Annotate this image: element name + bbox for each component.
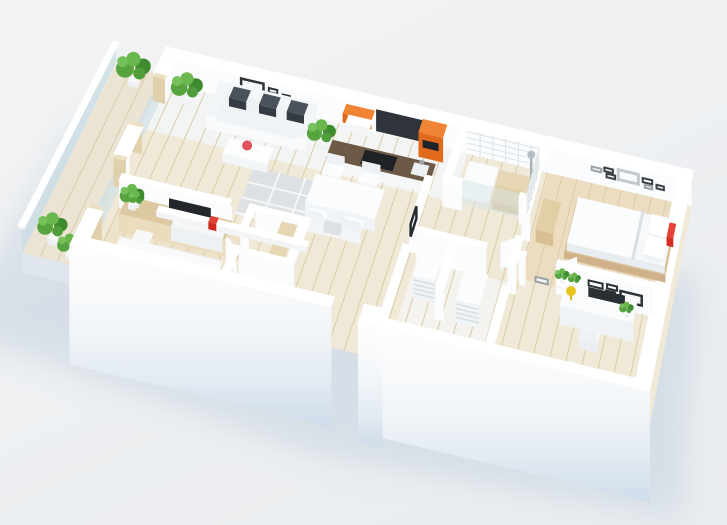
office-shelf-plant-2-leaves — [574, 278, 579, 283]
sofa-armrest-left-front — [206, 115, 217, 131]
bedroom2-plant-sideboard-leaves — [136, 198, 142, 204]
master-red-accent-front — [667, 237, 674, 247]
balcony-door-living-post-1-front — [153, 77, 165, 105]
office-lamp-yellow — [566, 286, 576, 296]
living-plant-left-leaves — [180, 72, 193, 85]
shower-head — [527, 151, 535, 159]
master-wall-art-5 — [645, 185, 652, 190]
office-desk-plant-leaves — [623, 302, 629, 308]
balcony-plant-top-leaves — [133, 68, 145, 80]
floor-plan-3d-render — [0, 0, 727, 525]
living-plant-right-leaves — [321, 132, 331, 142]
coffee-table-flowers — [242, 141, 252, 151]
master-wall-art-3 — [607, 174, 616, 180]
living-plant-left-leaves — [172, 76, 182, 86]
balcony-plant-top-leaves — [126, 52, 140, 66]
living-plant-right-leaves — [308, 123, 317, 132]
office-shelf-plant-1-leaves — [559, 268, 565, 274]
office-desk-plant-leaves — [620, 303, 625, 308]
bedroom2-plant-sideboard-leaves — [129, 193, 134, 198]
front-wall-pillar-front — [358, 322, 383, 449]
living-plant-left-leaves — [187, 87, 198, 98]
balcony-plant-corner-leaves — [58, 237, 66, 245]
balcony-plant-bottom-leaves — [38, 216, 47, 225]
bedroom2-plant-sideboard-leaves — [133, 191, 140, 198]
balcony-plant-bottom-leaves — [52, 226, 63, 237]
balcony-plant-bottom-leaves — [46, 212, 59, 225]
wall-master-office-stub-front — [519, 257, 526, 287]
wc-divider-front — [435, 289, 444, 322]
kitchen-faucet — [419, 160, 424, 165]
office-shelf-plant-1-leaves — [555, 270, 560, 275]
floor-plan-svg — [0, 0, 727, 525]
bedroom2-plant-floor-leaves — [121, 187, 129, 195]
office-shelf-plant-1-leaves — [562, 275, 567, 280]
office-shelf-plant-2-leaves — [568, 274, 572, 278]
shower-wall-front-front — [442, 180, 462, 211]
master-wall-art-4 — [643, 178, 653, 184]
sofa-armrest-right-front — [295, 136, 306, 152]
balcony-plant-top-leaves — [117, 56, 128, 67]
office-shelf-plant-2-leaves — [572, 273, 577, 278]
office-desk-plant-leaves — [626, 308, 631, 313]
master-wall-art-2 — [604, 168, 613, 174]
master-wall-art-6 — [657, 185, 664, 190]
living-plant-right-leaves — [315, 119, 327, 131]
